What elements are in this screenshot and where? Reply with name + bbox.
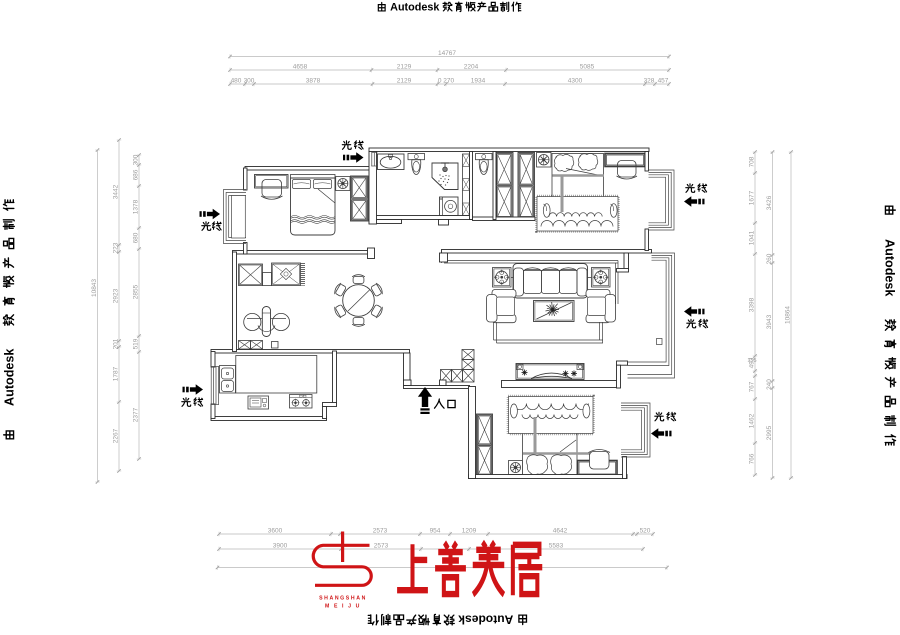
svg-text:1209: 1209 — [462, 527, 477, 534]
svg-text:2267: 2267 — [112, 428, 119, 443]
svg-text:708: 708 — [748, 156, 755, 167]
svg-text:457: 457 — [658, 77, 669, 84]
svg-text:2377: 2377 — [132, 407, 139, 422]
svg-text:155: 155 — [747, 358, 756, 364]
svg-text:480: 480 — [231, 77, 242, 84]
svg-text:2855: 2855 — [132, 284, 139, 299]
svg-text:14767: 14767 — [438, 50, 456, 57]
svg-text:0 270: 0 270 — [438, 77, 455, 84]
svg-text:1677: 1677 — [748, 190, 755, 205]
svg-text:3943: 3943 — [766, 314, 773, 329]
svg-text:3442: 3442 — [112, 184, 119, 199]
svg-text:2573: 2573 — [374, 542, 389, 549]
svg-text:4658: 4658 — [293, 63, 308, 70]
svg-text:954: 954 — [430, 527, 441, 534]
svg-text:10864: 10864 — [784, 306, 791, 324]
svg-text:4642: 4642 — [553, 527, 568, 534]
svg-text:686: 686 — [132, 169, 139, 180]
svg-text:2204: 2204 — [464, 63, 479, 70]
svg-text:1462: 1462 — [748, 413, 755, 428]
svg-text:Autodesk: Autodesk — [390, 2, 440, 14]
svg-text:2129: 2129 — [397, 63, 412, 70]
svg-text:328: 328 — [644, 77, 655, 84]
svg-text:680: 680 — [132, 232, 139, 243]
svg-text:Autodesk: Autodesk — [458, 612, 513, 626]
svg-text:SHANGSHAN: SHANGSHAN — [319, 596, 367, 602]
svg-text:520: 520 — [640, 527, 651, 534]
svg-text:300: 300 — [244, 77, 255, 84]
svg-text:260: 260 — [766, 253, 773, 264]
svg-text:2995: 2995 — [766, 425, 773, 440]
svg-text:3398: 3398 — [748, 297, 755, 312]
svg-text:2573: 2573 — [373, 527, 388, 534]
svg-text:5085: 5085 — [580, 63, 595, 70]
svg-text:767: 767 — [748, 381, 755, 392]
svg-text:1378: 1378 — [132, 199, 139, 214]
svg-text:M E I J U: M E I J U — [325, 604, 361, 610]
svg-text:201: 201 — [112, 338, 119, 349]
svg-text:223: 223 — [112, 242, 119, 253]
svg-text:5583: 5583 — [549, 542, 564, 549]
svg-text:1934: 1934 — [471, 77, 486, 84]
svg-text:10843: 10843 — [91, 279, 98, 297]
svg-text:2923: 2923 — [112, 288, 119, 303]
svg-text:Autodesk: Autodesk — [883, 239, 897, 297]
svg-text:1041: 1041 — [748, 230, 755, 245]
svg-text:3900: 3900 — [273, 542, 288, 549]
svg-text:1787: 1787 — [112, 366, 119, 381]
svg-text:Autodesk: Autodesk — [2, 348, 16, 406]
svg-text:240: 240 — [766, 379, 773, 390]
svg-text:300: 300 — [132, 154, 139, 165]
svg-text:519: 519 — [132, 338, 139, 349]
svg-text:2129: 2129 — [397, 77, 412, 84]
svg-text:3878: 3878 — [306, 77, 321, 84]
svg-text:766: 766 — [748, 453, 755, 464]
svg-text:4300: 4300 — [568, 77, 583, 84]
svg-text:3426: 3426 — [766, 195, 773, 210]
svg-text:3600: 3600 — [268, 527, 283, 534]
